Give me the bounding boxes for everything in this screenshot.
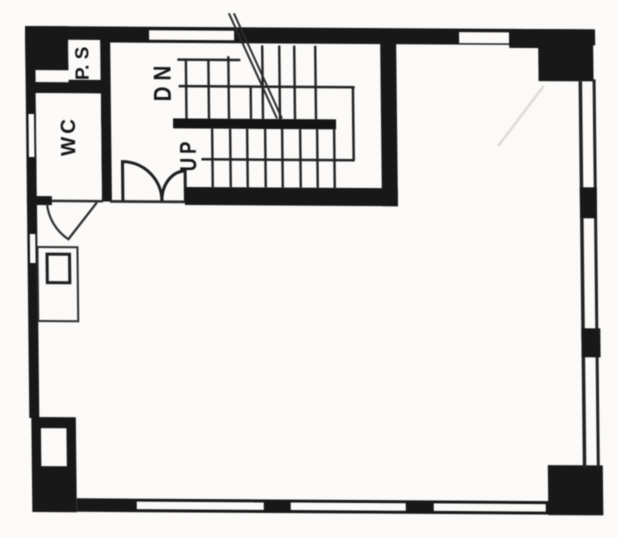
svg-text:P. S: P. S [72, 47, 93, 81]
svg-text:DN: DN [149, 60, 177, 102]
svg-text:WC: WC [57, 116, 80, 156]
svg-text:UP: UP [176, 138, 202, 172]
